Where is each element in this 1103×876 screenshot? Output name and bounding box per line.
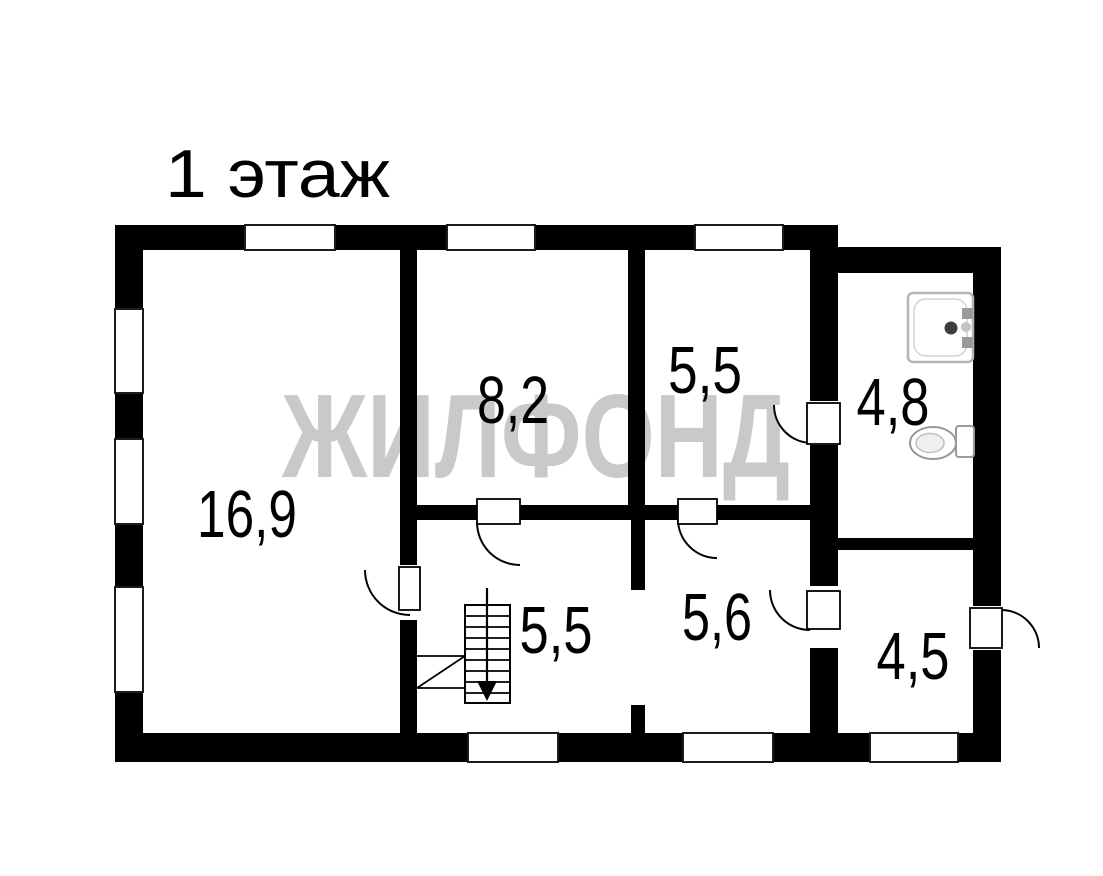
- wall-middle-horizontal: [417, 505, 810, 520]
- wall-hall-stub-top: [631, 520, 645, 590]
- door-leaf: [807, 591, 840, 629]
- wall-annex-divider: [838, 538, 973, 550]
- window: [115, 309, 143, 393]
- room-label-bottom-middle: 5,6: [682, 580, 752, 655]
- door-leaf: [678, 499, 717, 524]
- window: [447, 225, 535, 250]
- room-label-top-right: 5,5: [668, 333, 742, 408]
- door-leaf: [399, 567, 420, 610]
- window: [468, 733, 558, 762]
- shower-faucet: [962, 308, 973, 319]
- room-label-bathroom: 4,8: [857, 365, 930, 440]
- room-label-entry-room: 4,5: [877, 619, 950, 694]
- wall-main-right: [810, 250, 838, 733]
- shower-drain: [945, 322, 958, 335]
- room-label-stair-hall: 5,5: [520, 593, 593, 668]
- wall-annex-top: [838, 247, 1001, 273]
- wall-between-top-rooms: [628, 250, 645, 505]
- room-label-top-middle: 8,2: [477, 363, 549, 438]
- floor-plan-svg: ЖИЛФОНД: [0, 0, 1103, 876]
- window: [115, 587, 143, 692]
- window: [870, 733, 958, 762]
- shower-faucet: [962, 337, 973, 348]
- wall-living-room-right: [400, 250, 417, 733]
- window: [245, 225, 335, 250]
- floor-plan-image: ЖИЛФОНД: [0, 0, 1103, 876]
- room-label-living-room: 16,9: [197, 477, 297, 552]
- window: [695, 225, 783, 250]
- floor-title: 1 этаж: [165, 136, 391, 212]
- wall-hall-stub-bottom: [631, 705, 645, 733]
- toilet-tank: [956, 426, 974, 457]
- door-leaf: [970, 608, 1002, 648]
- wall-annex-right: [973, 273, 1001, 733]
- shower-knob: [961, 322, 971, 332]
- door-leaf: [477, 499, 520, 524]
- window: [683, 733, 773, 762]
- shower-tray-icon: [908, 293, 973, 362]
- shower-tray-inner: [914, 299, 967, 356]
- window: [115, 439, 143, 524]
- door-leaf: [807, 403, 840, 444]
